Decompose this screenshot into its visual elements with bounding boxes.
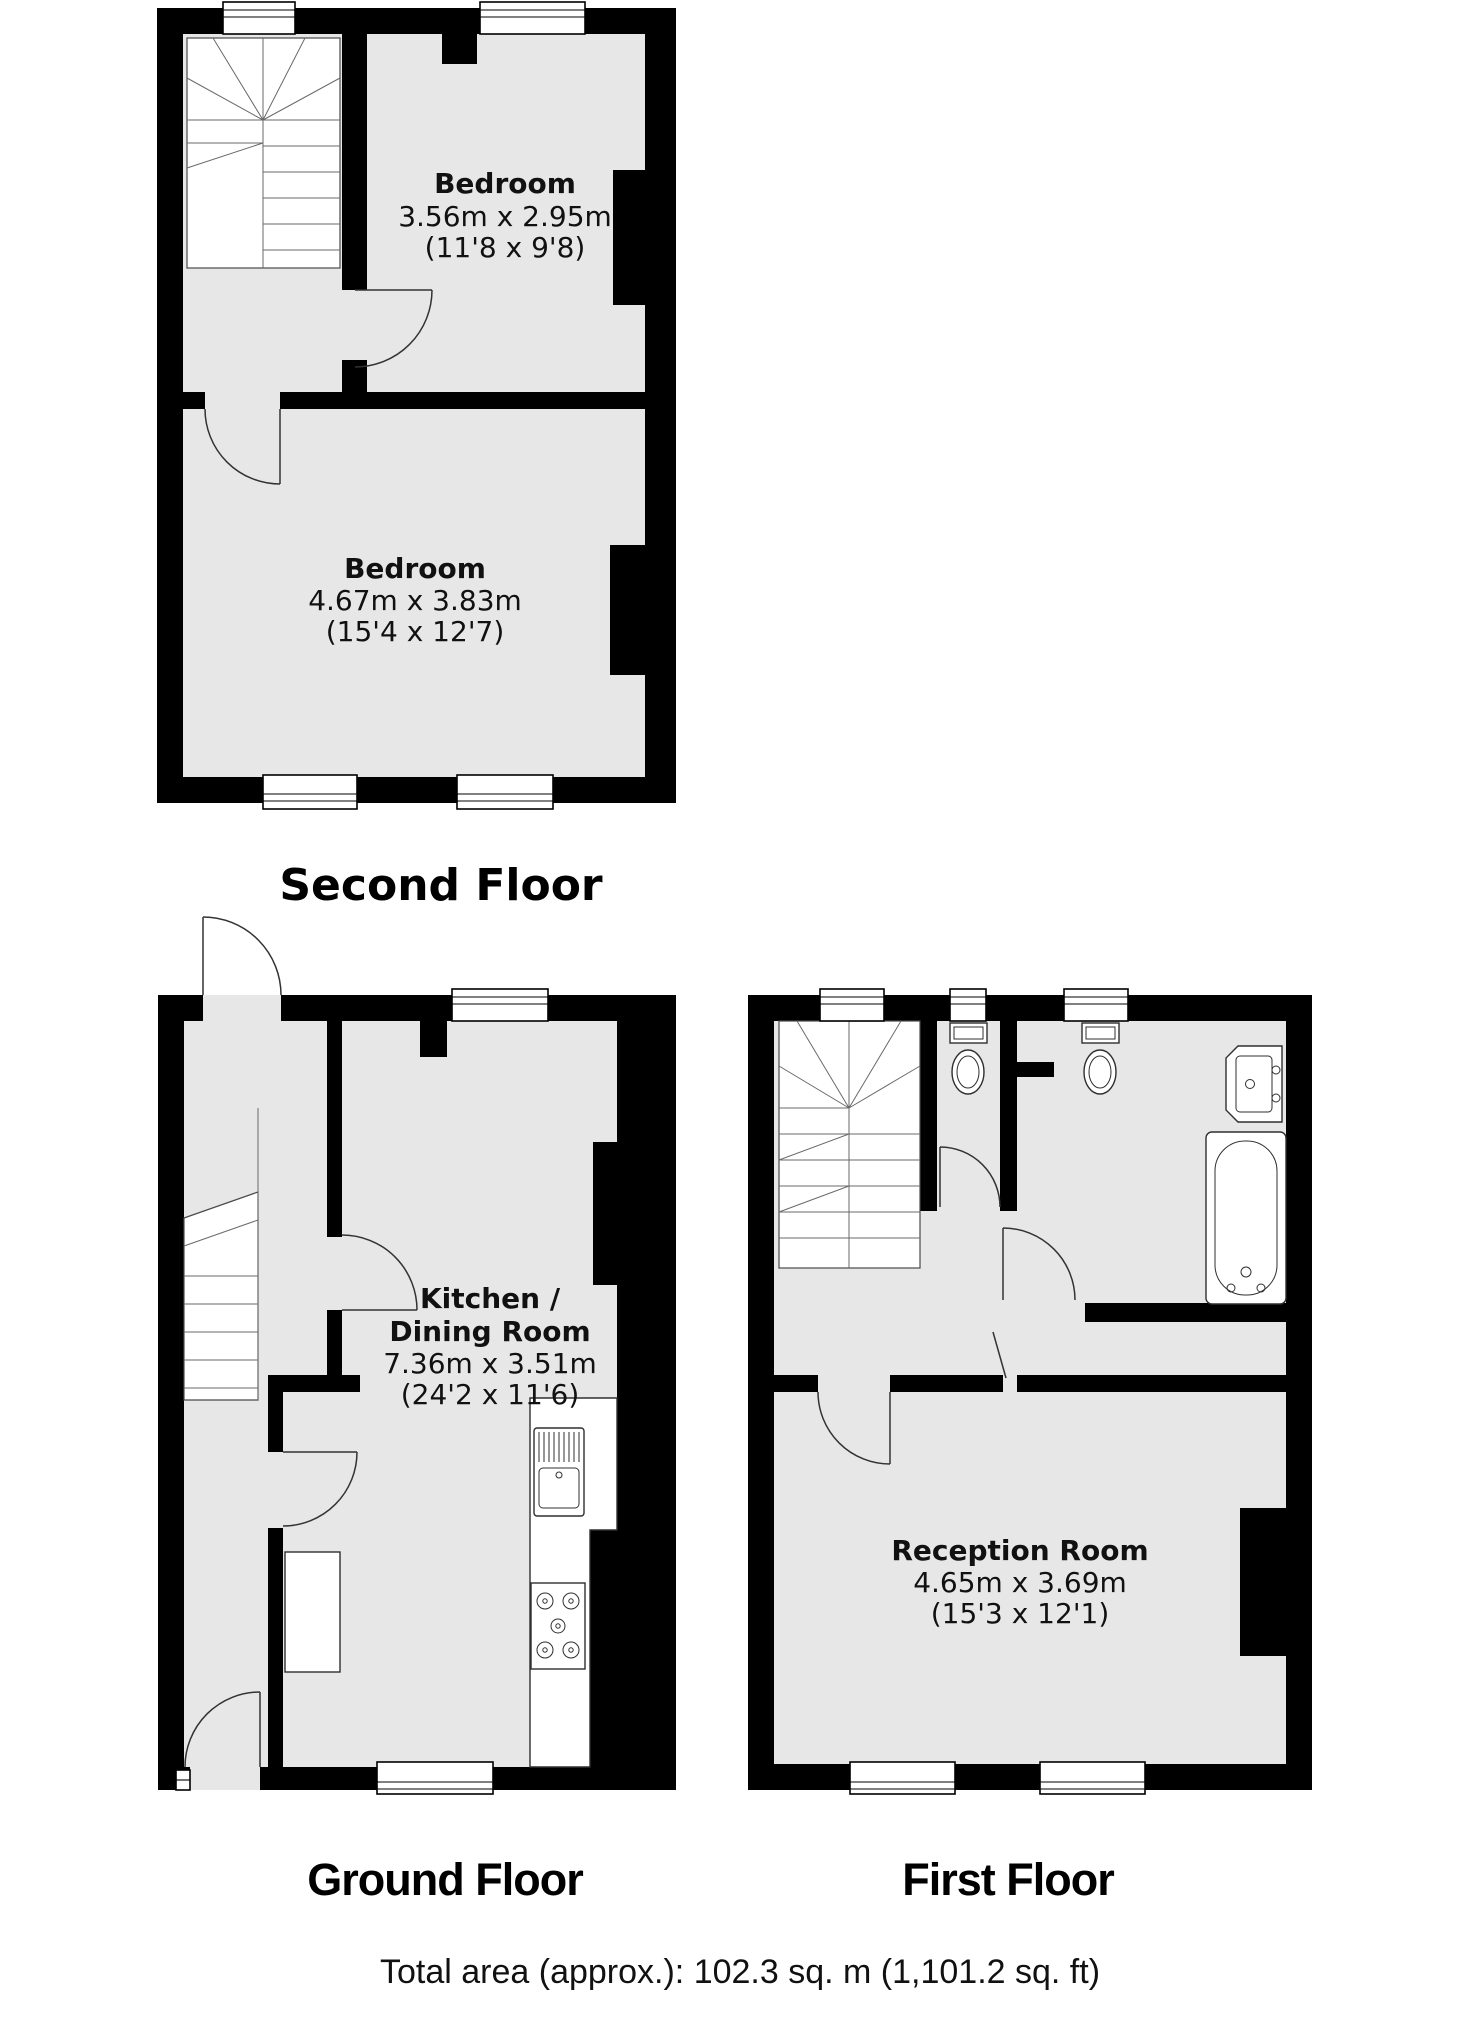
window bbox=[263, 775, 357, 809]
window bbox=[1064, 989, 1128, 1021]
floorplan-ground-floor: Kitchen / Dining Room 7.36m x 3.51m (24'… bbox=[158, 917, 676, 1905]
window bbox=[950, 989, 986, 1021]
toilet bbox=[1082, 1023, 1119, 1094]
hallway-wall bbox=[268, 1528, 283, 1767]
chimney-breast bbox=[593, 1142, 617, 1285]
bathroom-wall-jog bbox=[1017, 1062, 1054, 1077]
front-door bbox=[203, 917, 281, 1021]
window bbox=[820, 989, 884, 1021]
window bbox=[452, 989, 548, 1021]
window bbox=[457, 775, 553, 809]
caption-second-floor: Second Floor bbox=[279, 860, 603, 911]
partition-wall bbox=[342, 360, 367, 394]
wall-pier bbox=[442, 34, 477, 64]
floorplan-page: Bedroom 3.56m x 2.95m (11'8 x 9'8) Bedro… bbox=[0, 0, 1463, 2025]
window bbox=[850, 1762, 955, 1794]
room-dims-imperial: (15'4 x 12'7) bbox=[326, 615, 505, 648]
hallway-wall bbox=[268, 1392, 283, 1452]
room-label-bedroom-small: Bedroom bbox=[434, 167, 576, 200]
caption-ground-floor: Ground Floor bbox=[307, 1854, 583, 1905]
wall-mass bbox=[588, 1530, 617, 1767]
room-label-bedroom-large: Bedroom bbox=[344, 552, 486, 585]
staircase-first-floor bbox=[779, 1021, 920, 1268]
hob bbox=[531, 1583, 585, 1669]
bathroom-wall-bottom bbox=[1085, 1303, 1286, 1322]
caption-first-floor: First Floor bbox=[902, 1854, 1114, 1905]
wall-pier bbox=[420, 1021, 447, 1057]
chimney-breast bbox=[610, 545, 645, 675]
hallway-wall bbox=[327, 1310, 342, 1378]
reception-wall bbox=[890, 1375, 1003, 1392]
partition-wall bbox=[183, 392, 205, 409]
basin-sink bbox=[1226, 1046, 1282, 1122]
window-small bbox=[176, 1770, 190, 1790]
room-label-reception: Reception Room bbox=[891, 1534, 1148, 1567]
hallway-wall-jog bbox=[268, 1375, 360, 1392]
room-dims-metric: 7.36m x 3.51m bbox=[383, 1347, 597, 1380]
room-label-kitchen-line1: Kitchen / bbox=[420, 1282, 561, 1315]
room-dims-metric: 4.65m x 3.69m bbox=[913, 1566, 1127, 1599]
partition-wall bbox=[342, 34, 367, 290]
reception-wall bbox=[774, 1375, 818, 1392]
reception-wall bbox=[1017, 1375, 1286, 1392]
floorplan-first-floor: Reception Room 4.65m x 3.69m (15'3 x 12'… bbox=[748, 989, 1312, 1905]
partition-wall bbox=[280, 392, 645, 409]
wc-wall-right bbox=[1000, 1021, 1017, 1211]
hallway-wall bbox=[327, 1021, 342, 1237]
bathtub bbox=[1206, 1132, 1286, 1304]
window bbox=[223, 2, 295, 34]
window bbox=[377, 1762, 493, 1794]
staircase-second-floor bbox=[187, 38, 340, 268]
room-dims-imperial: (24'2 x 11'6) bbox=[401, 1378, 580, 1411]
chimney-breast bbox=[613, 170, 645, 305]
toilet bbox=[950, 1023, 987, 1094]
total-area-text: Total area (approx.): 102.3 sq. m (1,101… bbox=[380, 1953, 1100, 1991]
cupboard bbox=[285, 1552, 340, 1672]
chimney-breast bbox=[1240, 1508, 1286, 1656]
room-dims-imperial: (11'8 x 9'8) bbox=[425, 231, 586, 264]
window bbox=[480, 2, 585, 34]
room-dims-imperial: (15'3 x 12'1) bbox=[931, 1597, 1110, 1630]
window bbox=[1040, 1762, 1145, 1794]
wc-wall-left bbox=[920, 1021, 937, 1211]
room-dims-metric: 4.67m x 3.83m bbox=[308, 584, 522, 617]
room-label-kitchen-line2: Dining Room bbox=[389, 1315, 590, 1348]
kitchen-sink bbox=[534, 1428, 584, 1516]
room-dims-metric: 3.56m x 2.95m bbox=[398, 200, 612, 233]
floorplan-second-floor: Bedroom 3.56m x 2.95m (11'8 x 9'8) Bedro… bbox=[157, 2, 676, 911]
